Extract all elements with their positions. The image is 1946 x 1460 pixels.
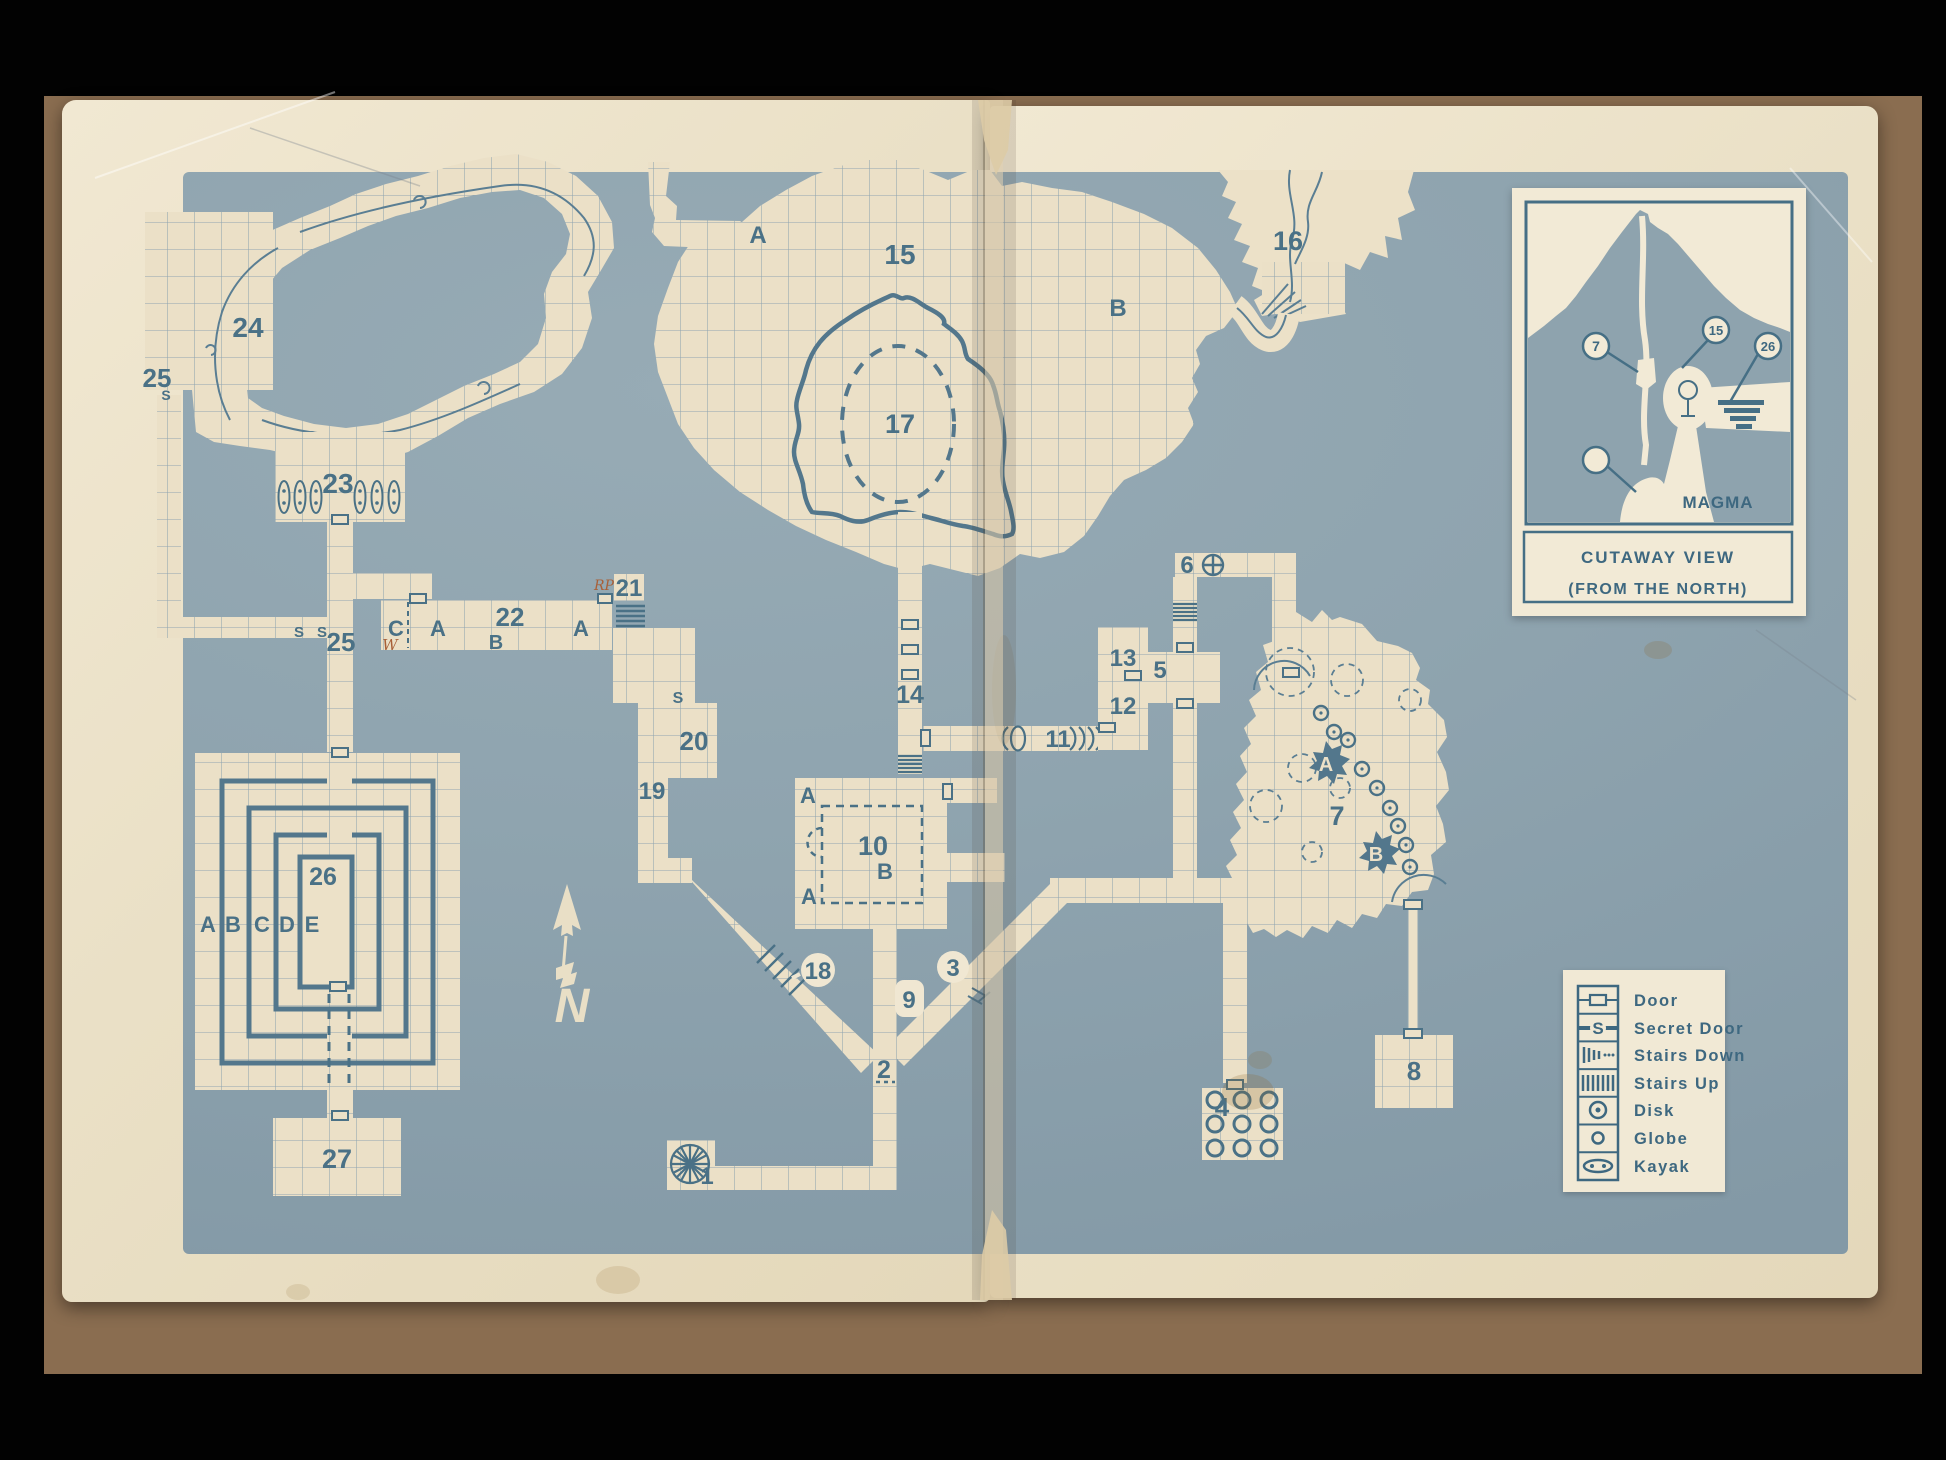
room-label: 3 xyxy=(946,955,959,982)
room-label: 23 xyxy=(322,468,353,499)
map-photo: 24 25 S 23 25 S S C A 22 B A 21 S 20 19 … xyxy=(0,0,1946,1460)
cutaway-subtitle: (FROM THE NORTH) xyxy=(1568,581,1748,598)
room-label: 7 xyxy=(1329,801,1344,831)
legend-label-door: Door xyxy=(1634,992,1679,1010)
room-label: 21 xyxy=(616,575,643,602)
room-label: 13 xyxy=(1110,645,1137,672)
handwritten-note-rp: RP xyxy=(593,578,615,594)
room-label: 26 xyxy=(309,863,337,891)
handwritten-note-w: W xyxy=(382,636,399,654)
room-label: 11 xyxy=(1045,726,1070,753)
legend-label-globe: Globe xyxy=(1634,1130,1688,1148)
room-label: 17 xyxy=(885,409,915,439)
cell-letter: A xyxy=(573,616,589,641)
island-cavern-7 xyxy=(1226,610,1449,938)
corridor-14 xyxy=(898,512,922,774)
cell-letter: E xyxy=(305,912,320,937)
room-label: 20 xyxy=(680,726,709,756)
cutaway-title: CUTAWAY VIEW xyxy=(1581,548,1735,567)
magma-label: MAGMA xyxy=(1682,493,1753,512)
room-label: 5 xyxy=(1153,657,1166,684)
cavern-letter: B xyxy=(1109,295,1126,322)
legend-label-stairs-down: Stairs Down xyxy=(1634,1047,1746,1065)
cell-letter: B xyxy=(225,912,241,937)
room-label: 15 xyxy=(884,239,915,270)
room-label: 12 xyxy=(1110,693,1137,720)
room-label: 18 xyxy=(805,958,832,985)
cavern-letter: A xyxy=(749,222,766,249)
cutaway-callout-15: 15 xyxy=(1709,323,1723,338)
center-fold xyxy=(972,100,1016,1300)
cell-letter: A xyxy=(800,783,816,808)
maze-room-26 xyxy=(195,753,460,1196)
room-label: 16 xyxy=(1273,226,1303,256)
room-label: 19 xyxy=(639,778,666,805)
cutaway-callout-26: 26 xyxy=(1761,339,1775,354)
cell-letter: B xyxy=(489,632,503,654)
dungeon-map-art: 24 25 S 23 25 S S C A 22 B A 21 S 20 19 … xyxy=(0,0,1946,1460)
room-label: 1 xyxy=(700,1163,713,1190)
room-label: 9 xyxy=(902,987,915,1014)
svg-text:S: S xyxy=(1592,1019,1603,1038)
secret-door-mark: S xyxy=(294,624,304,641)
room-label: 24 xyxy=(232,312,264,343)
cutaway-callout-7: 7 xyxy=(1592,338,1600,354)
map-legend: S Do xyxy=(1563,970,1746,1192)
cutaway-inset: 7 15 26 MAGMA CUTAWAY VIEW (FROM THE NOR… xyxy=(1512,188,1806,616)
room-label: 27 xyxy=(322,1144,352,1174)
cell-letter: D xyxy=(279,912,295,937)
room-label: 6 xyxy=(1180,552,1193,579)
stairs-up-icon xyxy=(1583,1075,1613,1091)
room-label: 22 xyxy=(496,602,525,632)
secret-door-mark: S xyxy=(161,387,170,403)
legend-label-disk: Disk xyxy=(1634,1102,1675,1120)
cell-letter: B xyxy=(877,859,893,884)
north-arrow-icon xyxy=(553,884,581,988)
island-letter: B xyxy=(1369,844,1383,866)
north-letter: N xyxy=(555,980,591,1033)
cell-letter: A xyxy=(430,616,446,641)
globe-icon xyxy=(1203,555,1223,575)
island-letter: A xyxy=(1319,754,1333,776)
room-label: 10 xyxy=(858,831,888,861)
secret-door-mark: S xyxy=(673,690,684,707)
cavern-16 xyxy=(1218,170,1415,341)
stairs-down-dots xyxy=(1604,1054,1615,1057)
cavern-15 xyxy=(648,160,1238,576)
room-label: 2 xyxy=(877,1056,891,1084)
cell-letter: A xyxy=(200,912,216,937)
legend-label-secret-door: Secret Door xyxy=(1634,1020,1744,1038)
legend-label-kayak: Kayak xyxy=(1634,1158,1690,1176)
secret-door-mark: S xyxy=(317,624,327,641)
legend-label-stairs-up: Stairs Up xyxy=(1634,1075,1720,1093)
room-label: 25 xyxy=(327,627,356,657)
cell-letter: A xyxy=(801,884,817,909)
room-label: 8 xyxy=(1407,1056,1421,1086)
room-label: 14 xyxy=(896,681,924,709)
cell-letter: C xyxy=(254,912,270,937)
